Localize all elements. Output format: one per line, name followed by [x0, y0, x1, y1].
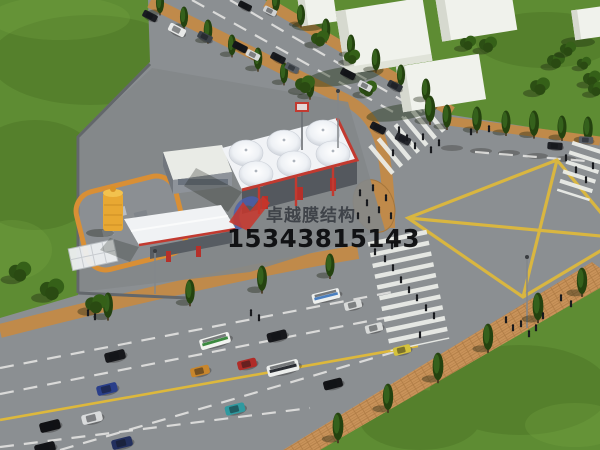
- pedestrian: [470, 128, 472, 135]
- rendering-canvas: 卓越膜结构 15343815143: [0, 0, 600, 450]
- pedestrian: [425, 304, 427, 311]
- pedestrian: [512, 324, 514, 331]
- pedestrian: [585, 176, 587, 183]
- watermark-brand-text: 卓越膜结构: [266, 205, 356, 226]
- watermark-phone-text: 15343815143: [227, 224, 420, 253]
- pedestrian: [398, 126, 400, 133]
- pedestrian: [408, 286, 410, 293]
- pedestrian: [392, 264, 394, 271]
- fuel-dispenser: [196, 246, 201, 257]
- pedestrian: [422, 133, 424, 140]
- pedestrian: [258, 314, 260, 321]
- pedestrian: [406, 134, 408, 141]
- pedestrian: [542, 312, 544, 319]
- pedestrian: [87, 309, 89, 316]
- pedestrian: [378, 206, 380, 213]
- pedestrian: [575, 166, 577, 173]
- pedestrian: [430, 146, 432, 153]
- pedestrian: [570, 300, 572, 307]
- pedestrian: [392, 149, 394, 156]
- pedestrian: [565, 154, 567, 161]
- pedestrian: [488, 125, 490, 132]
- pedestrian: [366, 199, 368, 206]
- pedestrian: [433, 312, 435, 319]
- fuel-dispenser: [166, 251, 171, 262]
- pedestrian: [416, 294, 418, 301]
- pedestrian: [560, 294, 562, 301]
- pedestrian: [414, 142, 416, 149]
- pedestrian: [250, 309, 252, 316]
- pedestrian: [400, 276, 402, 283]
- pedestrian: [368, 216, 370, 223]
- pedestrian: [94, 313, 96, 320]
- pedestrian: [357, 212, 359, 219]
- fuel-dispenser: [297, 187, 303, 200]
- pedestrian: [520, 320, 522, 327]
- pedestrian: [528, 330, 530, 337]
- pedestrian: [592, 162, 594, 169]
- pedestrian: [505, 316, 507, 323]
- pedestrian: [419, 331, 421, 338]
- pedestrian: [535, 324, 537, 331]
- gas-station-rendering: 卓越膜结构 15343815143: [0, 0, 600, 450]
- pedestrian: [390, 212, 392, 219]
- pedestrian: [359, 189, 361, 196]
- pedestrian: [372, 184, 374, 191]
- pedestrian: [384, 255, 386, 262]
- pedestrian: [438, 139, 440, 146]
- pedestrian: [385, 194, 387, 201]
- building: [571, 6, 600, 40]
